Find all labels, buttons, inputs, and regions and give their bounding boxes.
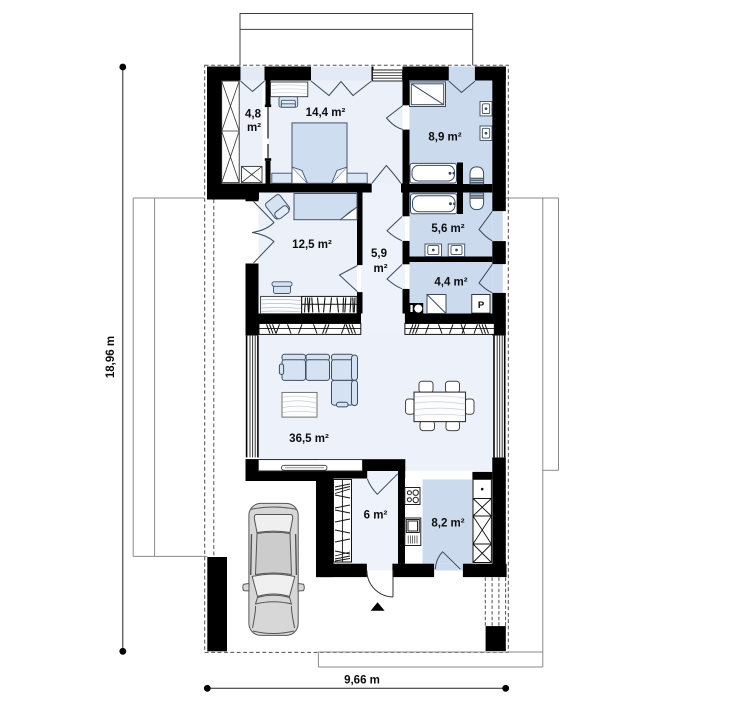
svg-text:14,4 m²: 14,4 m² (306, 107, 346, 119)
svg-text:5,6 m²: 5,6 m² (431, 223, 464, 235)
svg-text:4,8: 4,8 (245, 109, 262, 121)
svg-text:4,4 m²: 4,4 m² (434, 277, 467, 289)
svg-text:P: P (478, 300, 485, 311)
svg-text:36,5 m²: 36,5 m² (289, 433, 329, 445)
svg-text:m²: m² (247, 122, 261, 134)
svg-text:9,66 m: 9,66 m (344, 675, 380, 687)
svg-text:18,96 m: 18,96 m (105, 336, 117, 378)
svg-text:5,9: 5,9 (371, 248, 387, 260)
svg-text:6 m²: 6 m² (364, 510, 388, 522)
svg-text:m²: m² (373, 263, 387, 275)
svg-text:12,5 m²: 12,5 m² (292, 239, 332, 251)
svg-text:8,9 m²: 8,9 m² (428, 132, 461, 144)
svg-text:8,2 m²: 8,2 m² (431, 518, 464, 530)
